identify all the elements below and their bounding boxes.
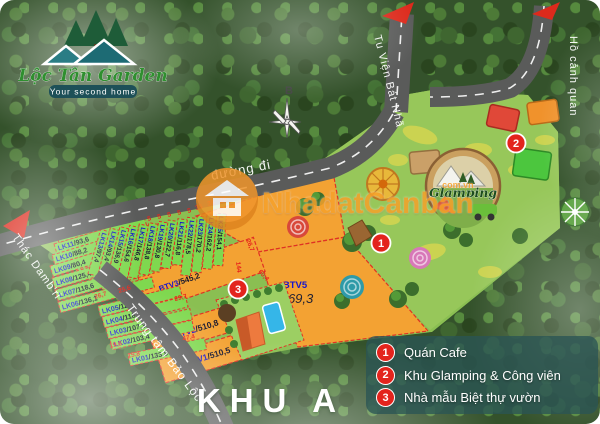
logo-tagline: Your second home bbox=[50, 87, 137, 97]
legend-item-glamping: 2 Khu Glamping & Công viên bbox=[376, 366, 588, 385]
watermark-house-icon bbox=[196, 168, 258, 230]
watermark: com.vn NhadatCanban bbox=[196, 168, 426, 230]
brand-logo: Lộc Tân Garden Your second home bbox=[18, 8, 168, 100]
marker-2: 2 bbox=[507, 134, 526, 153]
gazebo bbox=[561, 198, 589, 226]
legend-item-cafe: 1 Quán Cafe bbox=[376, 343, 588, 362]
marker-1: 1 bbox=[372, 234, 391, 253]
legend-marker-1: 1 bbox=[376, 343, 395, 362]
svg-text:BTV5: BTV5 bbox=[283, 280, 308, 291]
svg-text:1: 1 bbox=[378, 238, 384, 250]
legend-marker-2: 2 bbox=[376, 366, 395, 385]
legend-label-3: Nhà mẫu Biệt thự vườn bbox=[404, 390, 541, 405]
dimension-label: 144 bbox=[234, 261, 242, 273]
marker-3: 3 bbox=[229, 280, 248, 299]
svg-text:2: 2 bbox=[513, 138, 519, 150]
watermark-text: NhadatCanban bbox=[262, 187, 474, 220]
legend-item-model-house: 3 Nhà mẫu Biệt thự vườn bbox=[376, 388, 588, 407]
legend-label-2: Khu Glamping & Công viên bbox=[404, 368, 561, 383]
logo-title: Lộc Tân Garden bbox=[18, 66, 168, 86]
site-map: BTV5 969,3 BTV1/510,5BTV2/510,8BTV3/545,… bbox=[0, 0, 600, 424]
area-title: KHU A bbox=[196, 382, 346, 420]
compass: B bbox=[269, 85, 301, 138]
road-label-right: Hồ cảnh quan bbox=[567, 36, 579, 117]
legend-panel: 1 Quán Cafe 2 Khu Glamping & Công viên 3… bbox=[366, 336, 598, 414]
svg-text:3: 3 bbox=[235, 284, 241, 296]
legend-label-1: Quán Cafe bbox=[404, 345, 467, 360]
legend-marker-3: 3 bbox=[376, 388, 395, 407]
compass-north-label: B bbox=[285, 85, 293, 97]
logo-pine-trees bbox=[64, 10, 128, 50]
